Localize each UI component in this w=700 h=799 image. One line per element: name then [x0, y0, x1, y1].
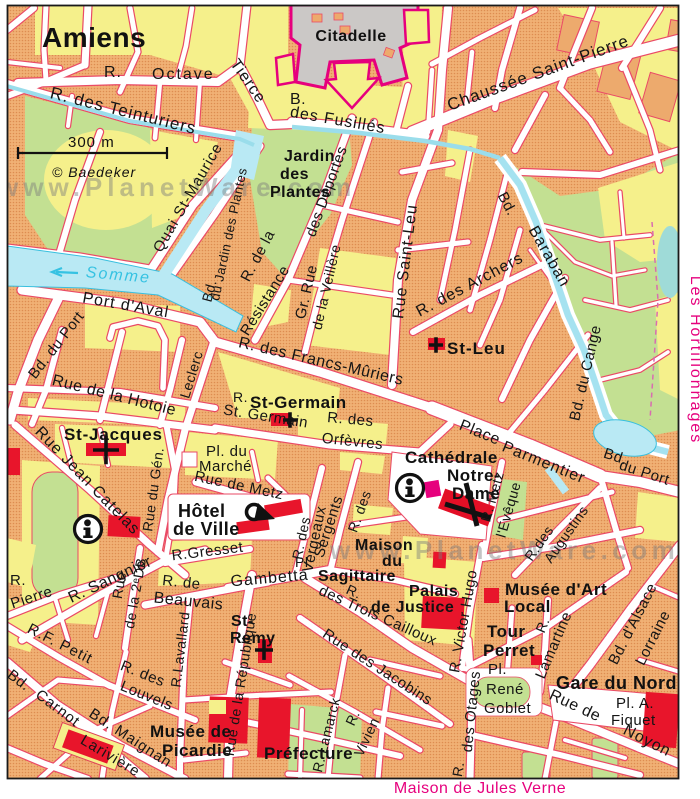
svg-text:Gare du Nord: Gare du Nord — [556, 673, 677, 693]
svg-text:Cathédrale: Cathédrale — [405, 448, 498, 467]
svg-text:Préfecture: Préfecture — [264, 744, 353, 763]
svg-text:Perret: Perret — [483, 641, 535, 660]
svg-text:Picardie: Picardie — [162, 741, 232, 760]
svg-text:Citadelle: Citadelle — [315, 28, 386, 45]
svg-text:© Baedeker: © Baedeker — [52, 164, 136, 180]
svg-text:300 m: 300 m — [68, 134, 115, 151]
svg-text:Maison: Maison — [355, 537, 413, 554]
svg-text:Pl. A.: Pl. A. — [616, 695, 654, 712]
svg-text:St-Jacques: St-Jacques — [64, 425, 163, 444]
svg-text:Octave: Octave — [152, 66, 215, 83]
svg-text:Goblet: Goblet — [484, 700, 532, 717]
svg-text:Les Hortillonnages: Les Hortillonnages — [687, 276, 700, 445]
svg-text:René: René — [486, 681, 524, 698]
svg-text:Maison de Jules Verne: Maison de Jules Verne — [394, 780, 566, 797]
svg-text:R.: R. — [449, 760, 467, 778]
svg-text:Sagittaire: Sagittaire — [318, 568, 396, 585]
svg-text:Musée de: Musée de — [150, 722, 231, 741]
svg-text:des: des — [280, 166, 309, 183]
svg-text:R.: R. — [10, 572, 26, 589]
svg-text:Local: Local — [504, 597, 551, 616]
svg-text:St-Leu: St-Leu — [447, 339, 506, 358]
svg-text:Palais: Palais — [409, 583, 458, 600]
svg-text:R.: R. — [104, 64, 122, 81]
svg-text:Tour: Tour — [487, 622, 526, 641]
svg-text:Pl.: Pl. — [488, 661, 507, 678]
svg-text:Amiens: Amiens — [42, 22, 146, 53]
svg-text:de Ville: de Ville — [173, 519, 240, 539]
svg-text:Hôtel: Hôtel — [178, 501, 226, 521]
